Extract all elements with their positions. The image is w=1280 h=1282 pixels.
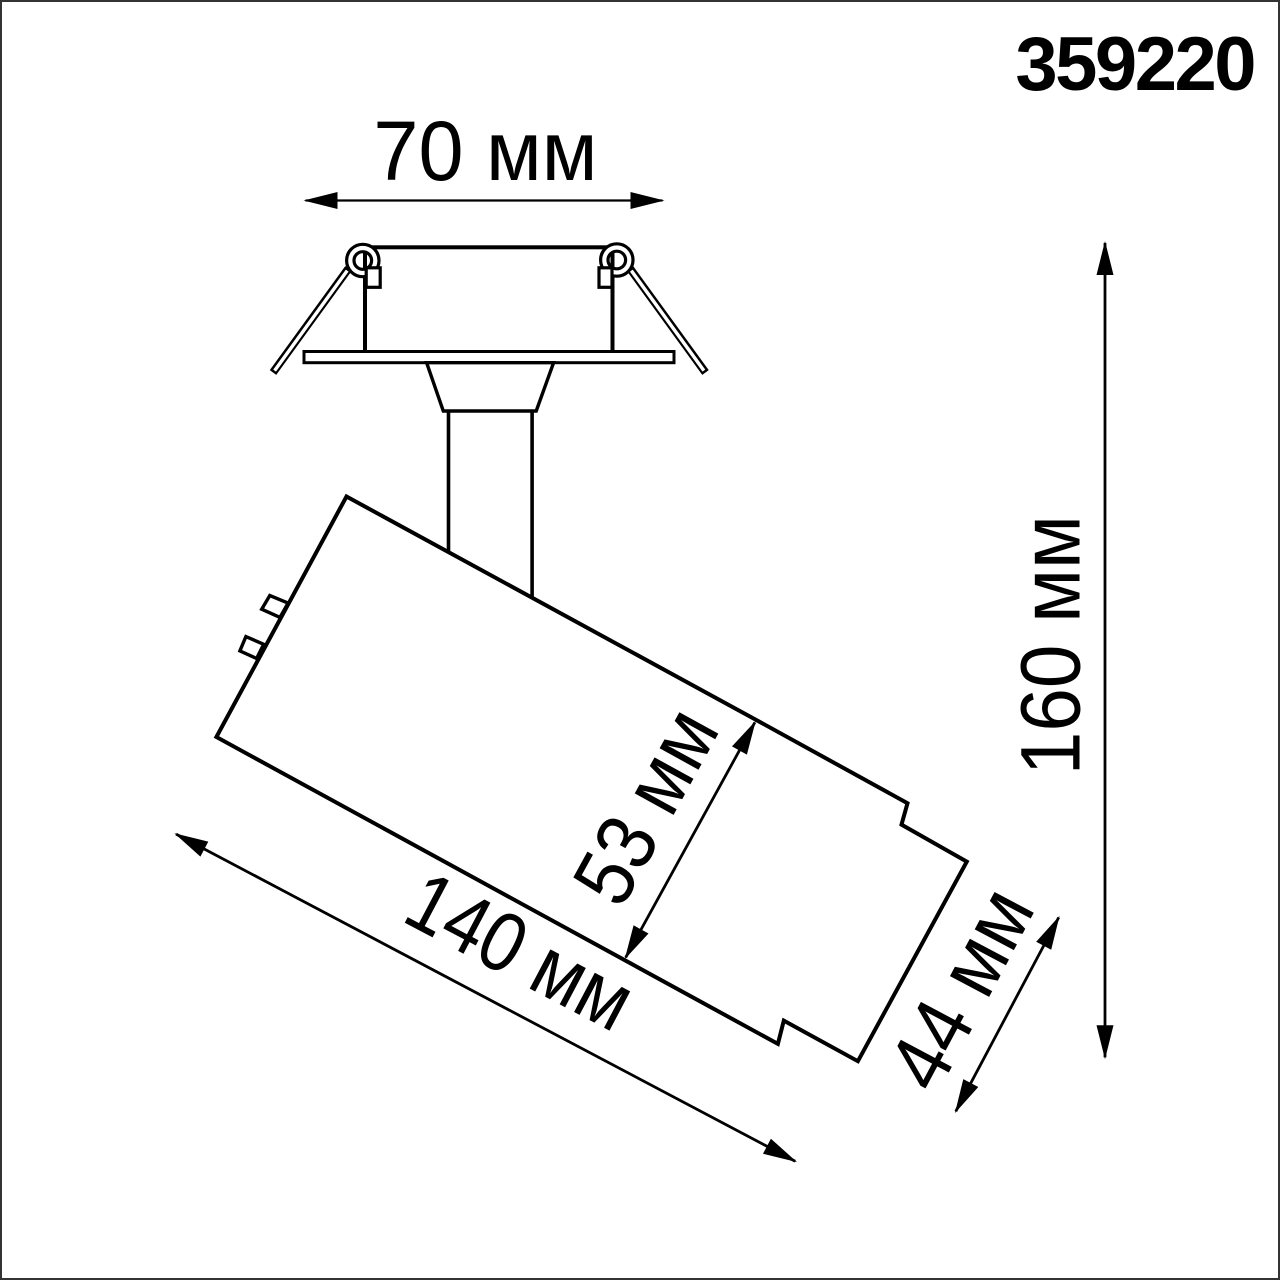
svg-text:70 мм: 70 мм xyxy=(373,104,597,198)
svg-text:160 мм: 160 мм xyxy=(1004,515,1098,775)
